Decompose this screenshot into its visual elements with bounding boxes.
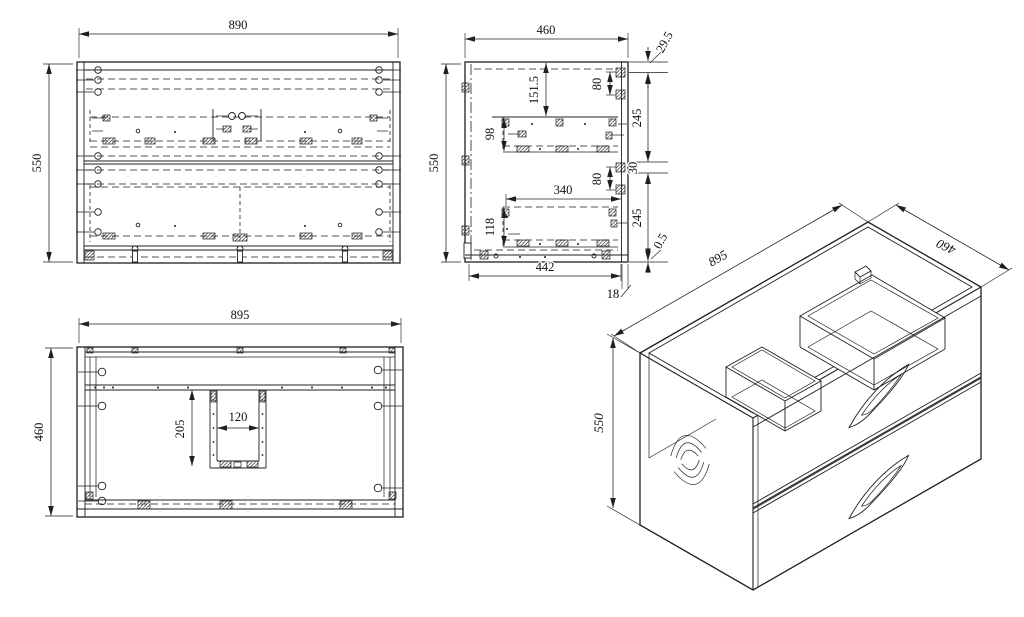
dim-drawer-gap: 30 (626, 162, 640, 175)
dim-side-depth: 460 (537, 23, 556, 37)
plumbing-cutout (210, 390, 266, 468)
front-middle-rails (76, 153, 401, 188)
dim-upper-box-height: 98 (483, 128, 497, 141)
dim-top-reveal: 29.5 (653, 29, 676, 55)
top-view: 895 460 205 120 (32, 308, 403, 517)
dim-lower-drawer-front: 245 (630, 209, 644, 228)
side-view: 460 550 151.5 98 80 80 340 118 (427, 23, 676, 301)
isometric-view: 895 460 550 (591, 203, 1012, 590)
front-top-screws (76, 67, 401, 96)
dim-lower-box-depth: 340 (554, 183, 573, 197)
front-lower-drawer-hidden (76, 185, 401, 242)
technical-drawing-canvas: 890 550 (0, 0, 1024, 617)
dim-top-width: 895 (231, 308, 250, 322)
front-upper-drawer-hidden (90, 109, 390, 147)
dim-runner-setdown: 151.5 (527, 76, 541, 104)
front-bottom-panel (84, 246, 393, 262)
dim-bottom-reveal: 0.5 (651, 231, 671, 251)
cabinet-drawing: 890 550 (0, 0, 1024, 617)
dim-lower-box-height: 118 (483, 218, 497, 236)
dim-upper-drawer-front: 245 (630, 109, 644, 128)
dim-iso-height: 550 (591, 413, 606, 433)
dim-cutout-depth: 205 (173, 420, 187, 439)
dim-hinge-pitch-top: 80 (590, 78, 604, 91)
dim-cutout-width: 120 (229, 410, 248, 424)
top-dimensions: 895 460 205 120 (32, 308, 401, 516)
side-lower-drawer-box (502, 207, 627, 247)
dim-top-depth: 460 (32, 423, 46, 442)
dim-hinge-pitch-bottom: 80 (590, 173, 604, 186)
front-view: 890 550 (30, 18, 401, 263)
dim-iso-width: 895 (706, 246, 731, 269)
dim-front-height: 550 (30, 154, 44, 173)
dim-iso-depth: 460 (934, 236, 959, 258)
side-upper-drawer-box (492, 117, 627, 152)
dim-inner-depth: 442 (536, 260, 555, 274)
dim-front-width: 890 (229, 18, 248, 32)
side-bottom-panel (465, 250, 628, 259)
dim-back-panel-thickness: 18 (607, 287, 620, 301)
top-view-screws (78, 366, 402, 505)
dim-side-height: 550 (427, 154, 441, 173)
